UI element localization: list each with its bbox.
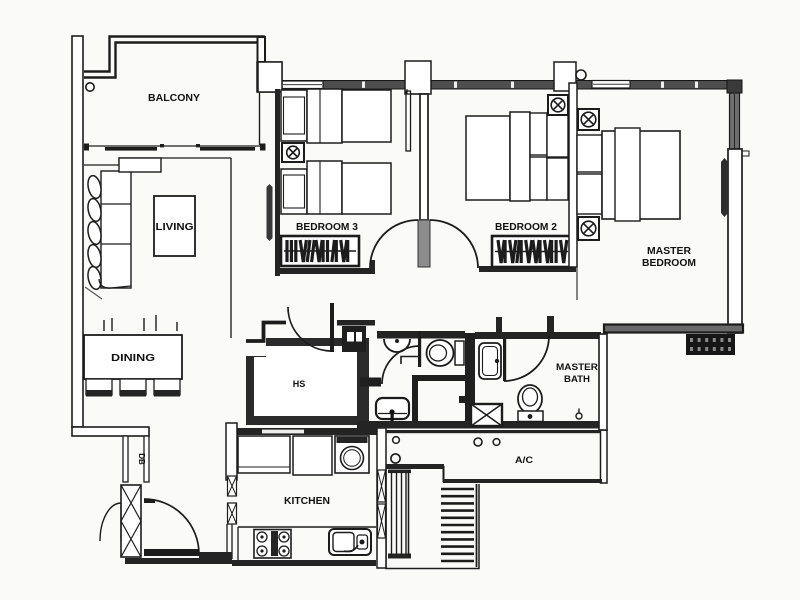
svg-text:BEDROOM: BEDROOM [642, 258, 696, 269]
svg-text:KITCHEN: KITCHEN [284, 495, 330, 507]
svg-text:BEDROOM 2: BEDROOM 2 [495, 221, 557, 233]
svg-text:BATH: BATH [564, 374, 590, 385]
svg-text:A/C: A/C [515, 455, 533, 466]
svg-text:BEDROOM 3: BEDROOM 3 [296, 221, 358, 233]
svg-text:HS: HS [293, 379, 306, 389]
svg-text:LIVING: LIVING [156, 221, 194, 233]
svg-text:DB: DB [137, 453, 146, 465]
svg-text:BALCONY: BALCONY [148, 92, 200, 104]
svg-text:DINING: DINING [111, 352, 155, 364]
svg-text:MASTER: MASTER [647, 246, 692, 257]
svg-text:MASTER: MASTER [556, 362, 598, 373]
